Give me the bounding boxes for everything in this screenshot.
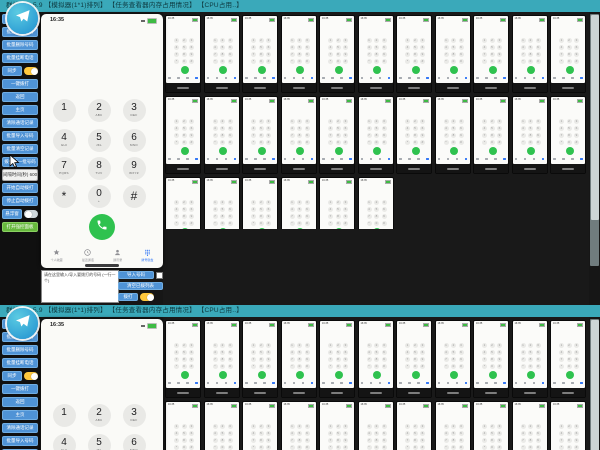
thumb-bezel (397, 164, 431, 173)
thumb-tab-contacts (571, 158, 574, 161)
keypad-key-2[interactable]: 2ABC (88, 404, 111, 427)
thumb-tab-recents (370, 158, 373, 161)
phone-thumbnail[interactable]: 16:35123456789*0# (281, 15, 317, 93)
sidebar-button-7[interactable]: 主页 (2, 410, 38, 420)
thumb-key: 9 (305, 133, 310, 138)
thumb-tab-bar (476, 77, 506, 80)
sidebar-toggle-15[interactable] (24, 210, 38, 218)
sidebar-button-8[interactable]: 清除通话记录 (2, 118, 38, 128)
thumb-key: 7 (251, 133, 256, 138)
thumb-tab-bar (438, 77, 468, 80)
thumb-tab-contacts (263, 77, 266, 80)
thumb-battery-icon (269, 99, 275, 103)
sidebar-button-7[interactable]: 主页 (2, 105, 38, 115)
thumb-tab-contacts (379, 77, 382, 80)
thumb-home-indicator (331, 168, 343, 170)
keypad-key-4[interactable]: 4GHI (53, 434, 76, 450)
thumb-key: * (521, 364, 526, 369)
thumb-key: # (228, 445, 233, 450)
phone-thumbnail[interactable]: 16:35123456789*0# (550, 320, 586, 398)
thumb-key: 1 (213, 38, 218, 43)
thumb-tab-recents (293, 77, 296, 80)
thumb-key: 6 (189, 350, 194, 355)
keypad-key-3[interactable]: 3DEF (123, 99, 146, 122)
keypad-key-8[interactable]: 8TUV (88, 157, 111, 180)
thumb-key: 2 (490, 424, 495, 429)
keypad-key-5[interactable]: 5JKL (88, 434, 111, 450)
thumb-status-time: 16:35 (207, 179, 213, 182)
phone-thumbnail[interactable]: 16:35123456789*0# (396, 320, 432, 398)
keypad-key-6[interactable]: 6MNO (123, 434, 146, 450)
keypad-key-9[interactable]: 9WXYZ (123, 157, 146, 180)
thumb-call-button (566, 371, 574, 379)
sidebar-button-16[interactable]: 打开强控面板 (2, 222, 38, 232)
thumb-key: 9 (343, 133, 348, 138)
phone-thumbnail[interactable]: 16:35123456789*0# (473, 96, 509, 174)
thumb-key: 1 (328, 343, 333, 348)
phone-thumbnail[interactable]: 16:35123456789*0# (204, 401, 240, 450)
thumb-battery-icon (308, 99, 314, 103)
thumb-status-time: 16:35 (476, 17, 482, 20)
thumbnail-screen: 16:35123456789*0# (513, 402, 547, 450)
scrollbar-thumb[interactable] (591, 15, 599, 220)
thumb-tab-recents (562, 382, 565, 385)
phone-thumbnail[interactable]: 16:35123456789*0# (396, 15, 432, 93)
thumb-key: 5 (336, 431, 341, 436)
phone-thumbnail[interactable]: 16:35123456789*0# (165, 96, 201, 174)
thumb-key: 1 (405, 343, 410, 348)
thumb-battery-icon (346, 99, 352, 103)
thumb-call-button (219, 147, 227, 155)
thumb-battery-icon (192, 323, 198, 327)
thumb-call-button (181, 66, 189, 74)
thumb-key: 4 (213, 207, 218, 212)
grid-scrollbar[interactable] (590, 14, 599, 266)
sidebar-toggle-4[interactable] (24, 67, 38, 75)
thumbnail-screen: 16:35123456789*0# (166, 402, 200, 450)
thumb-call-button (527, 66, 535, 74)
thumbnail-screen: 16:35123456789*0# (359, 16, 393, 83)
thumb-tab-favorites (476, 382, 479, 385)
sidebar-button-9[interactable]: 批量导入号码 (2, 131, 38, 141)
phone-thumbnail[interactable]: 16:35123456789*0# (358, 320, 394, 398)
phone-thumbnail[interactable]: 16:35123456789*0# (358, 15, 394, 93)
thumb-battery-icon (385, 323, 391, 327)
sidebar-toggle-4[interactable] (24, 372, 38, 380)
thumb-key: 4 (328, 126, 333, 131)
phone-thumbnail[interactable]: 16:35123456789*0# (204, 177, 240, 229)
thumb-key: 3 (189, 38, 194, 43)
sidebar-field[interactable]: 间隔时间(秒) 600 (2, 169, 38, 181)
thumb-call-button (335, 66, 343, 74)
thumb-battery-icon (269, 18, 275, 22)
sidebar: 批量打开拨号批量输入号码批量删除号码批量挂断电话同步一键拨打返回主页清除通话记录… (0, 12, 40, 305)
thumb-key: 2 (567, 343, 572, 348)
thumb-key: * (174, 221, 179, 226)
thumb-key: 6 (459, 350, 464, 355)
thumb-key: 0 (490, 140, 495, 145)
key-digit: # (123, 185, 146, 208)
thumb-key: 1 (482, 424, 487, 429)
thumb-key: # (228, 364, 233, 369)
tab-contacts[interactable]: 通讯录 (113, 249, 122, 262)
phone-thumbnail[interactable]: 16:35123456789*0# (165, 320, 201, 398)
thumb-call-button (335, 228, 343, 229)
thumb-key: 3 (343, 119, 348, 124)
thumb-key: 7 (290, 52, 295, 57)
thumb-key: 0 (374, 364, 379, 369)
phone-thumbnail[interactable]: 16:35123456789*0# (165, 177, 201, 229)
thumb-key: * (444, 59, 449, 64)
thumb-key: 6 (305, 207, 310, 212)
sidebar-button-2[interactable]: 批量删除号码 (2, 40, 38, 50)
thumb-status-time: 16:35 (168, 98, 174, 101)
phone-thumbnail[interactable]: 16:35123456789*0# (435, 96, 471, 174)
phone-thumbnail[interactable]: 16:35123456789*0# (319, 320, 355, 398)
phone-thumbnail[interactable]: 16:35123456789*0# (550, 15, 586, 93)
thumb-status-time: 16:35 (361, 403, 367, 406)
thumb-battery-icon (308, 323, 314, 327)
phone-thumbnail[interactable]: 16:35123456789*0# (396, 401, 432, 450)
thumb-key: 1 (174, 343, 179, 348)
sidebar-button-5[interactable]: 一键拨打 (2, 79, 38, 89)
sidebar-button-5[interactable]: 一键拨打 (2, 384, 38, 394)
thumb-key: 4 (521, 126, 526, 131)
thumb-bezel (205, 388, 239, 397)
thumb-key: 1 (213, 119, 218, 124)
phone-thumbnail[interactable]: 16:35123456789*0# (358, 401, 394, 450)
thumb-key: 9 (420, 438, 425, 443)
thumb-key: 9 (228, 438, 233, 443)
group-control-window: 群控 4.3.5.9 【模拟器(1*1)排列】 【任务查看器内存占用情况】 【C… (0, 0, 600, 305)
master-phone-screen: 16:35 12ABC3DEF4GHI5JKL6MNO7PQRS8TUV9WXY… (41, 319, 163, 450)
thumb-key: 6 (189, 126, 194, 131)
keypad-key-0[interactable]: 0+ (88, 185, 111, 208)
thumb-key: * (251, 445, 256, 450)
keypad-key-*[interactable]: * (53, 185, 76, 208)
thumbnail-screen: 16:35123456789*0# (166, 16, 200, 83)
thumb-key: 4 (290, 350, 295, 355)
thumb-key: 8 (220, 214, 225, 219)
thumb-tab-keypad (426, 158, 429, 161)
thumb-status-time: 16:35 (438, 322, 444, 325)
thumb-key: 3 (459, 38, 464, 43)
phone-thumbnail[interactable]: 16:35123456789*0# (165, 15, 201, 93)
thumb-call-button (258, 66, 266, 74)
thumb-key: 5 (413, 431, 418, 436)
tab-label: 个人收藏 (51, 258, 63, 262)
thumb-tab-bar (399, 382, 429, 385)
thumb-battery-icon (500, 323, 506, 327)
tab-keypad[interactable]: 拨号键盘 (141, 249, 153, 262)
thumb-key: 6 (420, 126, 425, 131)
thumb-home-indicator (562, 168, 574, 170)
thumb-key: 4 (559, 126, 564, 131)
thumb-key: 0 (528, 59, 533, 64)
thumb-battery-icon (462, 323, 468, 327)
thumb-key: * (328, 221, 333, 226)
thumb-tab-bar (515, 77, 545, 80)
phone-thumbnail[interactable]: 16:35123456789*0# (242, 15, 278, 93)
thumb-key: # (305, 221, 310, 226)
thumb-key: 3 (574, 343, 579, 348)
thumb-key: 7 (521, 357, 526, 362)
thumb-call-button (412, 66, 420, 74)
thumb-key: * (328, 59, 333, 64)
thumb-key: 3 (189, 200, 194, 205)
sidebar-button-6[interactable]: 返回 (2, 92, 38, 102)
clear-dialed-button[interactable]: 清空已拨列表 (118, 282, 163, 290)
sidebar-button-14[interactable]: 停止自动拨打 (2, 196, 38, 206)
phone-thumbnail[interactable]: 16:35123456789*0# (281, 96, 317, 174)
thumb-key: # (382, 59, 387, 64)
thumb-battery-icon (539, 99, 545, 103)
phone-thumbnail[interactable]: 16:35123456789*0# (204, 320, 240, 398)
thumbnail-screen: 16:35123456789*0# (243, 97, 277, 164)
sidebar-button-6[interactable]: 返回 (2, 397, 38, 407)
thumb-tab-favorites (284, 382, 287, 385)
phone-thumbnail[interactable]: 16:35123456789*0# (319, 177, 355, 229)
thumb-key: 0 (490, 445, 495, 450)
phone-thumbnail[interactable]: 16:35123456789*0# (396, 96, 432, 174)
phone-thumbnail[interactable]: 16:35123456789*0# (473, 15, 509, 93)
sidebar-button-11[interactable]: 拨打下一批号码 (2, 157, 38, 167)
thumb-key: 2 (528, 119, 533, 124)
tab-recents[interactable]: 最近通话 (82, 249, 94, 262)
thumb-tab-contacts (302, 382, 305, 385)
thumb-tab-recents (485, 158, 488, 161)
phone-thumbnail[interactable]: 16:35123456789*0# (204, 15, 240, 93)
phone-thumbnail[interactable]: 16:35123456789*0# (435, 15, 471, 93)
thumb-tab-bar (553, 158, 583, 161)
thumb-status-time: 16:35 (399, 322, 405, 325)
thumb-key: 9 (189, 214, 194, 219)
keypad-key-6[interactable]: 6MNO (123, 129, 146, 152)
phone-thumbnail[interactable]: 16:35123456789*0# (319, 15, 355, 93)
thumb-key: 4 (213, 431, 218, 436)
thumb-call-button (566, 147, 574, 155)
thumb-home-indicator (562, 87, 574, 89)
phone-thumbnail[interactable]: 16:35123456789*0# (204, 96, 240, 174)
thumb-key: 8 (220, 133, 225, 138)
phone-thumbnail[interactable]: 16:35123456789*0# (512, 320, 548, 398)
thumb-key: * (444, 140, 449, 145)
thumb-key: # (228, 140, 233, 145)
device-grid-row: 16:35123456789*0#16:35123456789*0#16:351… (165, 401, 589, 450)
thumb-tab-keypad (272, 77, 275, 80)
phone-thumbnail[interactable]: 16:35123456789*0# (165, 401, 201, 450)
keypad-key-4[interactable]: 4GHI (53, 129, 76, 152)
call-button[interactable] (89, 214, 115, 240)
import-checkbox[interactable] (156, 272, 163, 279)
keypad-key-#[interactable]: # (123, 185, 146, 208)
thumb-home-indicator (293, 392, 305, 394)
thumb-key: 0 (182, 59, 187, 64)
thumbnail-screen: 16:35123456789*0# (359, 178, 393, 229)
sidebar-button-15[interactable]: 悬浮窗 (2, 209, 22, 219)
thumb-key: 3 (497, 38, 502, 43)
thumbnail-screen: 16:35123456789*0# (166, 321, 200, 388)
phone-thumbnail[interactable]: 16:35123456789*0# (242, 96, 278, 174)
thumb-tab-recents (331, 382, 334, 385)
sidebar-button-13[interactable]: 开始自动拨打 (2, 183, 38, 193)
phone-thumbnail[interactable]: 16:35123456789*0# (319, 96, 355, 174)
thumb-status-time: 16:35 (245, 98, 251, 101)
thumb-key: 5 (567, 45, 572, 50)
keypad-key-1[interactable]: 1 (53, 99, 76, 122)
thumb-key: # (189, 59, 194, 64)
thumb-status-time: 16:35 (245, 179, 251, 182)
phone-thumbnail[interactable]: 16:35123456789*0# (473, 401, 509, 450)
thumb-key: 1 (251, 424, 256, 429)
thumb-key: 9 (459, 438, 464, 443)
thumb-tab-recents (254, 158, 257, 161)
thumb-key: 7 (521, 133, 526, 138)
phone-thumbnail[interactable]: 16:35123456789*0# (512, 15, 548, 93)
thumb-tab-favorites (284, 158, 287, 161)
thumb-call-button (258, 228, 266, 229)
sidebar-button-4[interactable]: 同步 (2, 66, 22, 76)
thumb-battery-icon (231, 404, 237, 408)
thumb-key: 7 (444, 438, 449, 443)
thumb-battery-icon (577, 99, 583, 103)
phone-thumbnail[interactable]: 16:35123456789*0# (512, 401, 548, 450)
thumb-key: 7 (174, 52, 179, 57)
phone-thumbnail[interactable]: 16:35123456789*0# (281, 401, 317, 450)
phone-thumbnail[interactable]: 16:35123456789*0# (281, 177, 317, 229)
thumb-key: 8 (297, 438, 302, 443)
thumb-key: * (482, 364, 487, 369)
sidebar-button-10[interactable]: 批量清空记录 (2, 144, 38, 154)
import-numbers-button[interactable]: 导入号码 (118, 271, 154, 279)
thumbnail-screen: 16:35123456789*0# (205, 16, 239, 83)
dial-button[interactable]: 拨打 (118, 293, 138, 301)
thumb-key: # (382, 445, 387, 450)
thumbnail-screen: 16:35123456789*0# (282, 321, 316, 388)
thumb-key: * (174, 59, 179, 64)
thumb-key: 4 (444, 431, 449, 436)
thumb-key: 8 (220, 438, 225, 443)
keypad-key-5[interactable]: 5JKL (88, 129, 111, 152)
phone-thumbnail[interactable]: 16:35123456789*0# (473, 320, 509, 398)
thumb-key: 8 (490, 133, 495, 138)
thumb-key: 8 (259, 52, 264, 57)
thumb-status-time: 16:35 (476, 98, 482, 101)
thumb-key: 3 (420, 119, 425, 124)
thumb-bezel (474, 83, 508, 92)
phone-thumbnail[interactable]: 16:35123456789*0# (242, 320, 278, 398)
dial-toggle[interactable] (140, 293, 154, 301)
thumb-call-button (373, 66, 381, 74)
thumb-call-button (296, 66, 304, 74)
sidebar-button-2[interactable]: 批量删除号码 (2, 345, 38, 355)
phone-thumbnail[interactable]: 16:35123456789*0# (512, 96, 548, 174)
thumb-tab-recents (408, 382, 411, 385)
thumb-status-time: 16:35 (399, 17, 405, 20)
thumb-key: 8 (220, 52, 225, 57)
device-grid: 16:35123456789*0#16:35123456789*0#16:351… (163, 12, 589, 305)
grid-scrollbar[interactable] (590, 319, 599, 450)
phone-thumbnail[interactable]: 16:35123456789*0# (550, 401, 586, 450)
phone-thumbnail[interactable]: 16:35123456789*0# (550, 96, 586, 174)
thumb-key: 2 (220, 343, 225, 348)
sidebar-button-4[interactable]: 同步 (2, 371, 22, 381)
phone-thumbnail[interactable]: 16:35123456789*0# (319, 401, 355, 450)
sidebar-button-8[interactable]: 清除通话记录 (2, 423, 38, 433)
thumb-key: 9 (189, 438, 194, 443)
phone-thumbnail[interactable]: 16:35123456789*0# (358, 96, 394, 174)
phone-thumbnail[interactable]: 16:35123456789*0# (435, 320, 471, 398)
thumb-home-indicator (447, 87, 459, 89)
thumb-key: 4 (328, 45, 333, 50)
thumb-key: 5 (220, 431, 225, 436)
number-list-input[interactable]: 请在这里输入/导入要拨打的号码 (一行一个) (41, 270, 119, 303)
phone-thumbnail[interactable]: 16:35123456789*0# (242, 177, 278, 229)
phone-thumbnail[interactable]: 16:35123456789*0# (242, 401, 278, 450)
thumb-tab-bar (284, 158, 314, 161)
thumb-key: 5 (451, 431, 456, 436)
thumb-key: 5 (451, 350, 456, 355)
thumb-tab-keypad (426, 382, 429, 385)
sidebar-button-3[interactable]: 批量挂断电话 (2, 53, 38, 63)
thumb-key: 3 (305, 119, 310, 124)
thumb-call-button (489, 147, 497, 155)
thumb-key: 2 (374, 119, 379, 124)
scrollbar-thumb[interactable] (591, 320, 599, 450)
keypad-key-2[interactable]: 2ABC (88, 99, 111, 122)
phone-thumbnail[interactable]: 16:35123456789*0# (281, 320, 317, 398)
keypad-key-1[interactable]: 1 (53, 404, 76, 427)
thumb-tab-keypad (311, 382, 314, 385)
thumb-key: * (559, 445, 564, 450)
thumb-key: 6 (305, 350, 310, 355)
thumb-key: # (266, 445, 271, 450)
window-titlebar: 群控 4.3.5.9 【模拟器(1*1)排列】 【任务查看器内存占用情况】 【C… (0, 305, 600, 317)
tab-favorites[interactable]: 个人收藏 (51, 249, 63, 262)
thumb-key: # (459, 364, 464, 369)
sidebar-button-9[interactable]: 批量导入号码 (2, 436, 38, 446)
keypad-key-7[interactable]: 7PQRS (53, 157, 76, 180)
thumbnail-screen: 16:35123456789*0# (282, 97, 316, 164)
thumb-tab-favorites (207, 77, 210, 80)
phone-thumbnail[interactable]: 16:35123456789*0# (435, 401, 471, 450)
thumb-key: 5 (336, 45, 341, 50)
thumb-battery-icon (385, 180, 391, 184)
home-indicator (85, 264, 119, 267)
thumbnail-screen: 16:35123456789*0# (551, 402, 585, 450)
thumbnail-screen: 16:35123456789*0# (513, 16, 547, 83)
thumb-key: 1 (251, 119, 256, 124)
thumb-key: 3 (343, 200, 348, 205)
keypad-key-3[interactable]: 3DEF (123, 404, 146, 427)
thumb-key: 6 (497, 126, 502, 131)
thumb-key: 8 (374, 438, 379, 443)
thumb-call-button (489, 371, 497, 379)
thumb-bezel (243, 164, 277, 173)
thumb-key: 7 (444, 52, 449, 57)
recents-icon (84, 249, 91, 257)
thumb-key: 4 (251, 207, 256, 212)
thumb-tab-favorites (322, 382, 325, 385)
thumb-key: 3 (420, 38, 425, 43)
toggle-knob (31, 68, 38, 75)
thumb-tab-bar (168, 382, 198, 385)
phone-thumbnail[interactable]: 16:35123456789*0# (358, 177, 394, 229)
sidebar-button-3[interactable]: 批量挂断电话 (2, 358, 38, 368)
window-title: 群控 4.3.5.9 【模拟器(1*1)排列】 【任务查看器内存占用情况】 【C… (6, 307, 243, 314)
thumb-battery-icon (346, 18, 352, 22)
key-letters: PQRS (53, 172, 76, 175)
